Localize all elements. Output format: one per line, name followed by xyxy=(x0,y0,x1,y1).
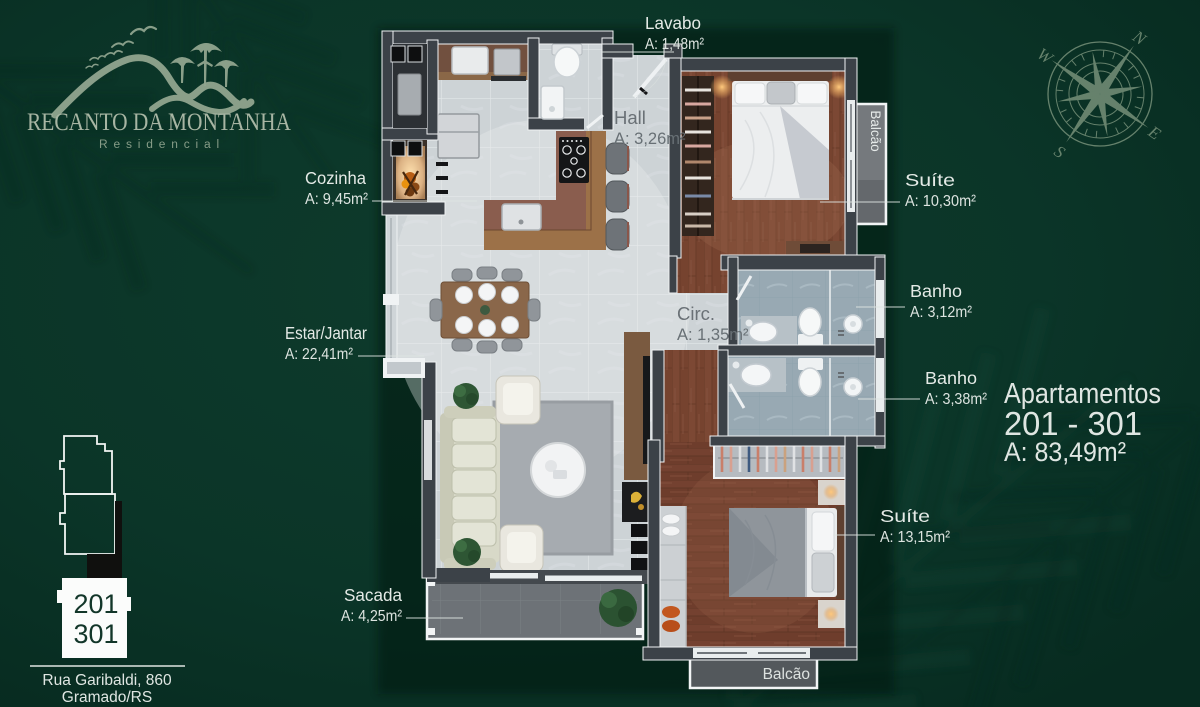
svg-text:A: 22,41m²: A: 22,41m² xyxy=(285,346,354,363)
svg-text:Hall: Hall xyxy=(614,107,646,128)
svg-text:A: 1,35m²: A: 1,35m² xyxy=(677,326,749,344)
svg-text:A: 3,26m²: A: 3,26m² xyxy=(614,130,686,148)
svg-text:A: 10,30m²: A: 10,30m² xyxy=(905,193,977,210)
svg-text:Banho: Banho xyxy=(925,368,977,388)
svg-text:RECANTO DA MONTANHA: RECANTO DA MONTANHA xyxy=(27,109,291,136)
svg-text:A: 9,45m²: A: 9,45m² xyxy=(305,191,369,208)
svg-text:Sacada: Sacada xyxy=(344,585,402,605)
svg-text:Rua Garibaldi, 860: Rua Garibaldi, 860 xyxy=(42,672,172,689)
svg-text:A: 4,25m²: A: 4,25m² xyxy=(341,608,403,625)
svg-text:A: 13,15m²: A: 13,15m² xyxy=(880,529,951,546)
svg-text:Estar/Jantar: Estar/Jantar xyxy=(285,323,367,343)
svg-text:Suíte: Suíte xyxy=(905,170,955,190)
svg-text:Circ.: Circ. xyxy=(677,303,715,324)
svg-text:Lavabo: Lavabo xyxy=(645,13,701,33)
svg-text:Residencial: Residencial xyxy=(99,139,225,151)
svg-text:Suíte: Suíte xyxy=(880,506,930,526)
svg-text:Banho: Banho xyxy=(910,281,962,301)
svg-text:A: 1,48m²: A: 1,48m² xyxy=(645,36,705,53)
svg-text:Balcão: Balcão xyxy=(763,666,810,683)
svg-text:301: 301 xyxy=(73,619,118,649)
svg-text:Cozinha: Cozinha xyxy=(305,168,366,188)
svg-text:Gramado/RS: Gramado/RS xyxy=(62,689,152,706)
svg-text:A: 83,49m²: A: 83,49m² xyxy=(1004,437,1126,467)
svg-text:A: 3,38m²: A: 3,38m² xyxy=(925,391,988,408)
svg-text:A: 3,12m²: A: 3,12m² xyxy=(910,304,973,321)
svg-text:Balcão: Balcão xyxy=(868,110,883,151)
svg-text:201: 201 xyxy=(73,589,118,619)
